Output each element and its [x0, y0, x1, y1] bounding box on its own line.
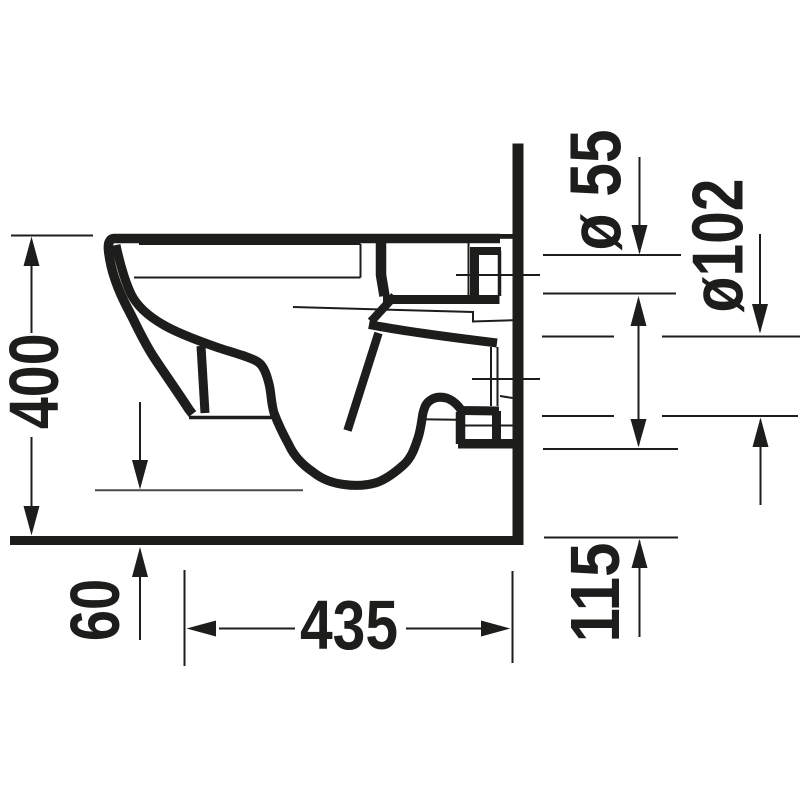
svg-text:ø102: ø102	[678, 179, 758, 313]
svg-text:ø 55: ø 55	[556, 130, 636, 251]
svg-text:115: 115	[556, 543, 634, 643]
svg-text:435: 435	[300, 585, 398, 664]
svg-text:60: 60	[57, 579, 134, 641]
svg-text:400: 400	[0, 333, 73, 429]
